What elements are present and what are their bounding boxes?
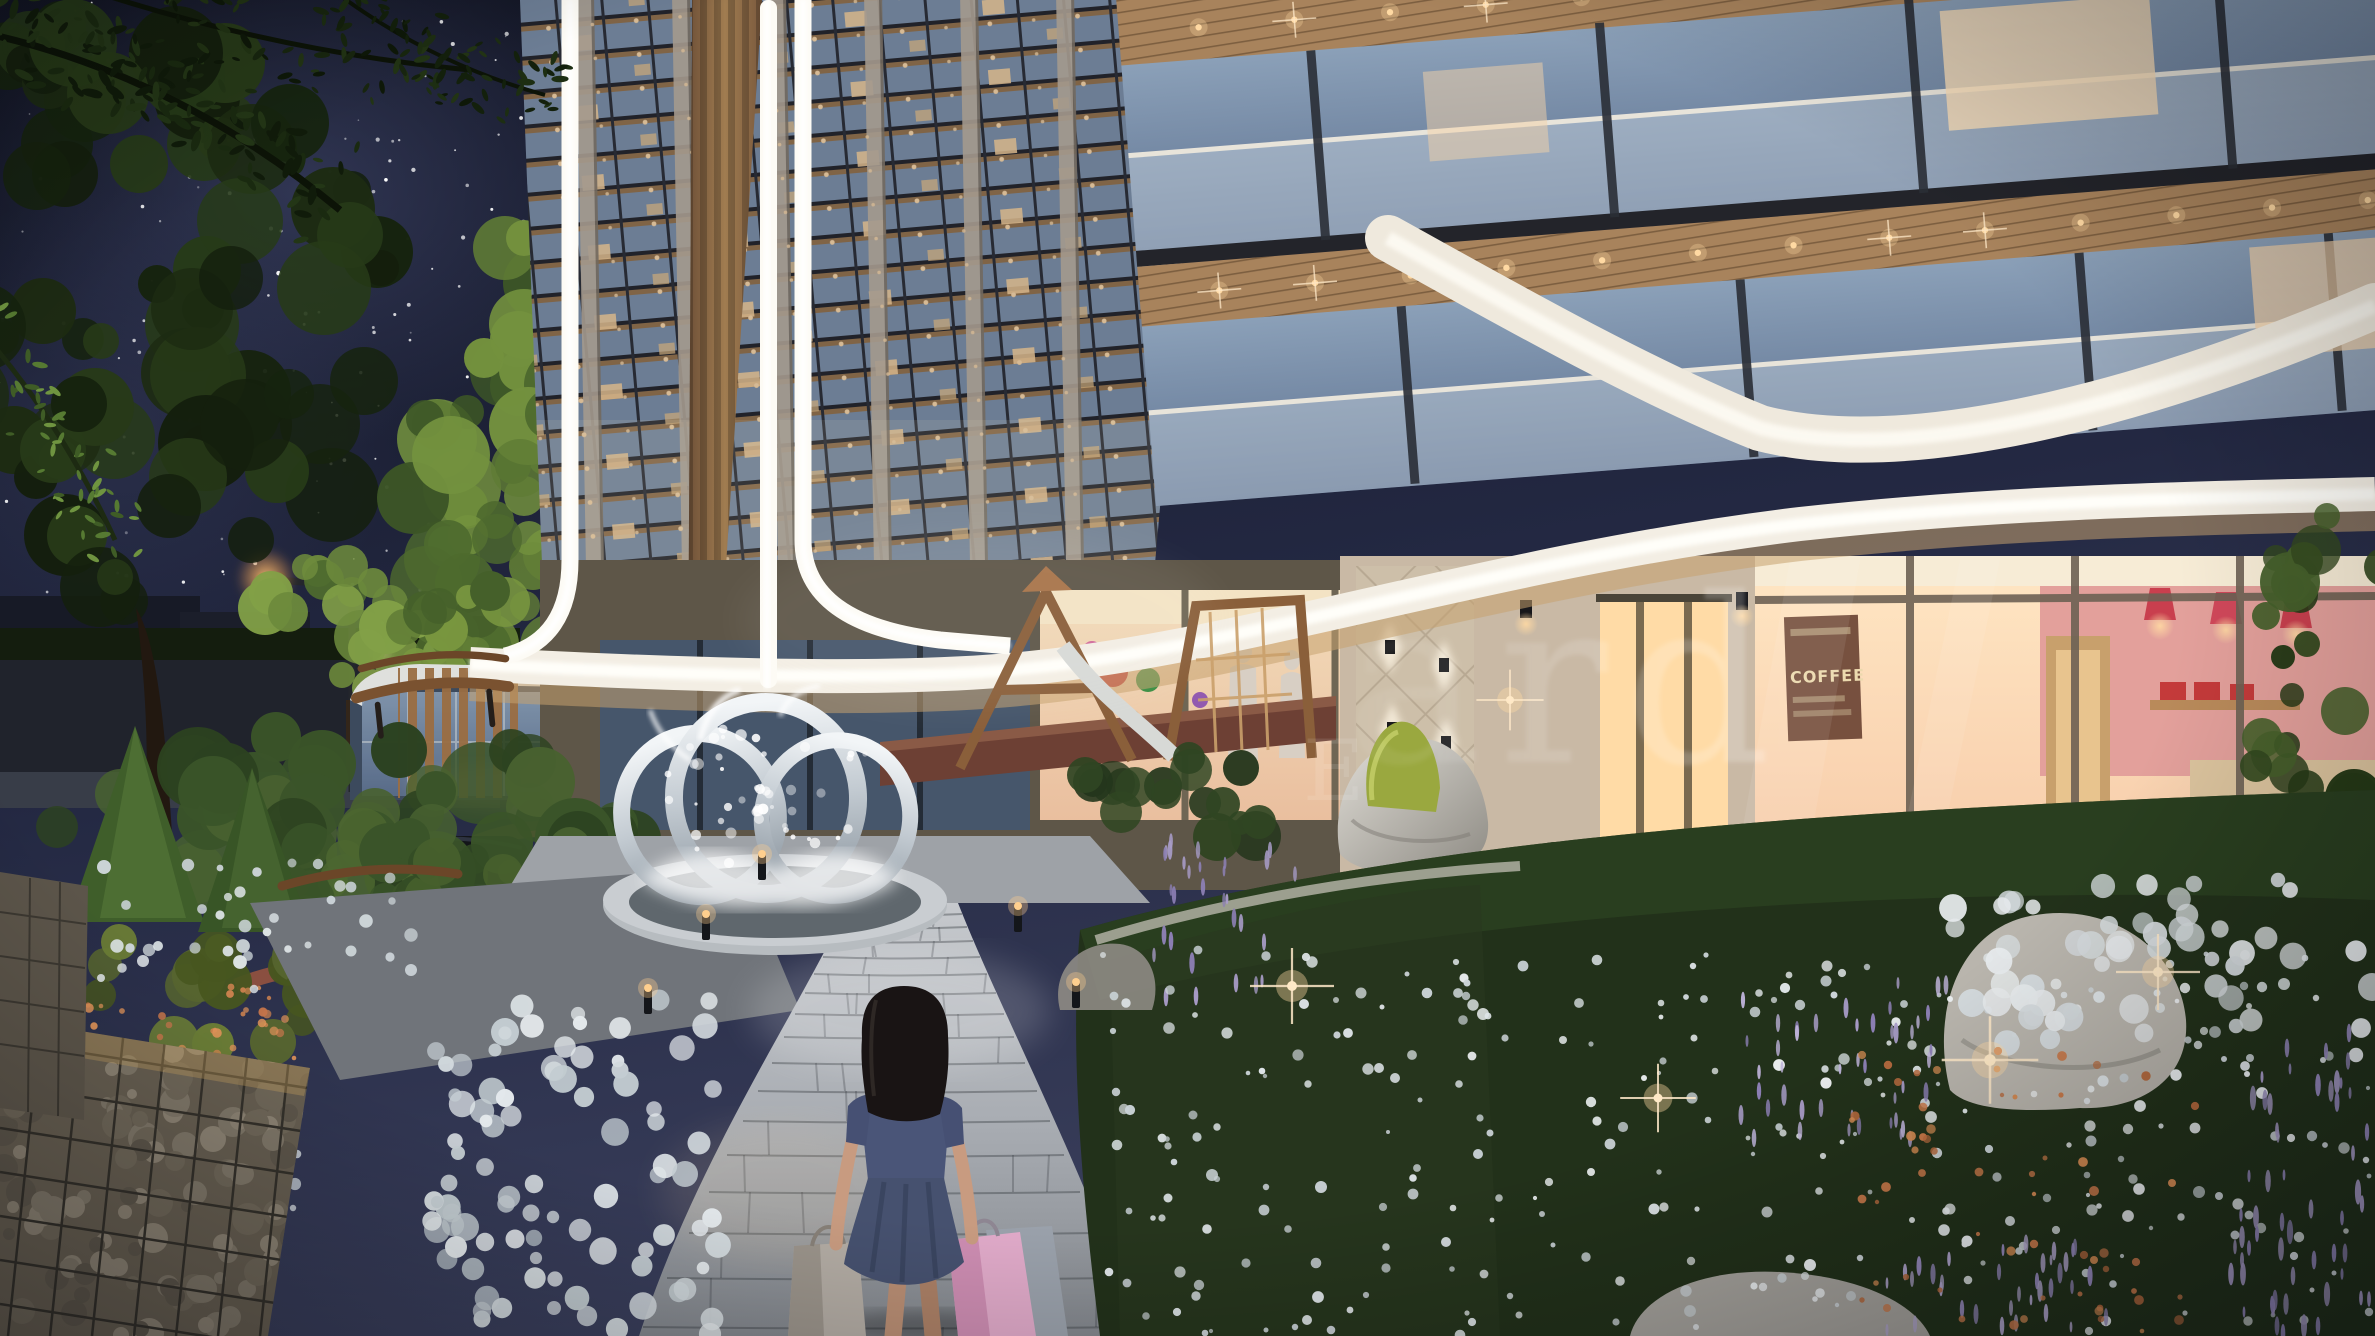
vignette — [0, 0, 2375, 1336]
scene-canvas: COFFEE — [0, 0, 2375, 1336]
night-render-scene: COFFEE — [0, 0, 2375, 1336]
